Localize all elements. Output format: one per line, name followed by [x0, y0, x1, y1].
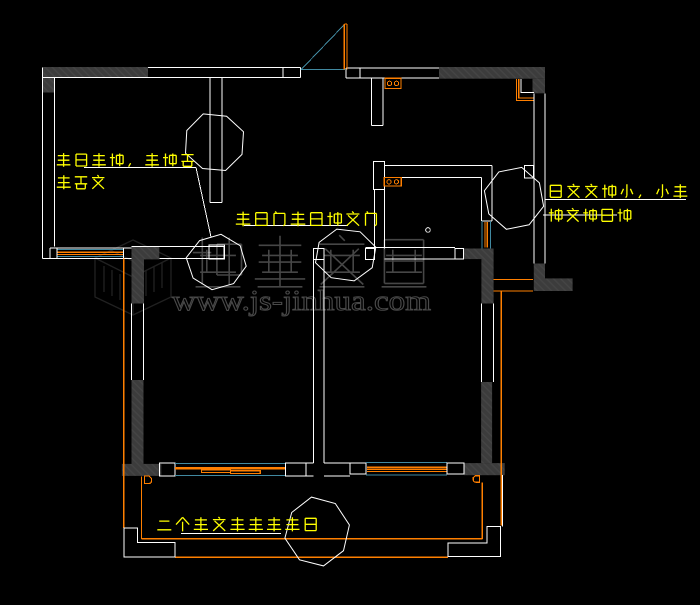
svg-text:www.js-jinhua.com: www.js-jinhua.com: [172, 286, 431, 317]
